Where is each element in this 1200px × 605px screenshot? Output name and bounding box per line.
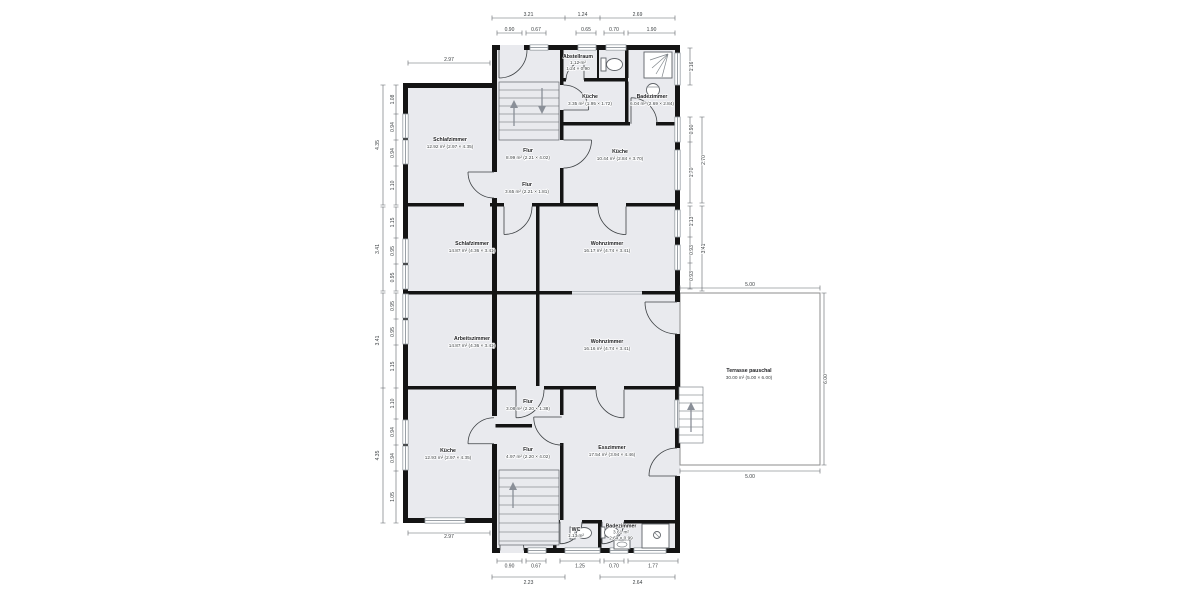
room-label-wohnzimmer-1: Wohnzimmer <box>591 241 623 247</box>
dim-text: 2.69 <box>633 12 643 18</box>
room-size-schlafzimmer-mid: 14.87 m² (4.36 × 3.41) <box>449 248 496 253</box>
window <box>578 45 596 50</box>
window <box>403 114 408 138</box>
dim-text: 3.21 <box>524 12 534 18</box>
room-size-esszimmer: 17.54 m² (3.94 × 4.46) <box>589 452 636 457</box>
room-size-kueche-small: 3.35 m² (1.95 × 1.72) <box>568 101 612 106</box>
room-size-flur-mid: 3.65 m² (2.21 × 1.81) <box>505 189 549 194</box>
stairs-bottom <box>499 470 559 545</box>
window <box>675 245 680 270</box>
window <box>675 150 680 190</box>
dim-text: 0.90 <box>505 564 515 570</box>
dim-text: 0.94 <box>390 122 396 132</box>
dim-text: 0.95 <box>390 301 396 311</box>
dim-text: 1.15 <box>390 217 396 227</box>
window <box>403 140 408 164</box>
dim-text: 1.77 <box>648 564 658 570</box>
room-size-wohnzimmer-1: 16.17 m² (4.74 × 3.41) <box>584 248 631 253</box>
shower-icon <box>642 524 669 548</box>
dim-text: 0.70 <box>609 27 619 33</box>
window <box>403 239 408 263</box>
room-dim-abstellraum: 1.24 × 0.90 <box>566 66 590 71</box>
dim-text: 1.05 <box>390 492 396 502</box>
room-label-flur-top: Flur <box>523 148 533 154</box>
floor-plan-canvas: Schlafzimmer 12.92 m² (2.97 × 4.35) Flur… <box>0 0 1200 600</box>
window <box>634 548 666 553</box>
room-size-schlafzimmer-top: 12.92 m² (2.97 × 4.35) <box>427 144 474 149</box>
dim-text: 0.95 <box>390 272 396 282</box>
room-size-wohnzimmer-2: 16.16 m² (4.74 × 3.41) <box>584 346 631 351</box>
room-size-flur-4: 4.97 m² (2.20 × 4.02) <box>506 454 550 459</box>
window <box>675 53 680 85</box>
dim-text: 1.16 <box>689 61 695 71</box>
room-dim-bad-bottom: 2.64 × 0.99 <box>609 536 633 541</box>
window <box>425 518 465 523</box>
window <box>606 45 626 50</box>
dim-text: 0.67 <box>531 564 541 570</box>
dim-text: 0.93 <box>689 271 695 281</box>
room-label-terrasse: Terrasse pauschal <box>726 368 772 374</box>
room-size-terrasse: 30.00 m² (5.00 × 6.00) <box>726 375 773 380</box>
room-size-arbeitszimmer: 14.87 m² (4.36 × 3.41) <box>449 343 496 348</box>
room-label-flur-mid: Flur <box>522 182 532 188</box>
dim-text: 5.00 <box>745 474 755 480</box>
dim-text: 6.00 <box>823 374 829 384</box>
room-label-schlafzimmer-mid: Schlafzimmer <box>455 241 489 247</box>
window <box>528 548 546 553</box>
dim-text: 1.70 <box>689 167 695 177</box>
room-size-flur-3: 3.08 m² (2.20 × 1.38) <box>506 406 550 411</box>
dim-text: 0.94 <box>390 427 396 437</box>
dim-text: 1.90 <box>647 27 657 33</box>
dim-text: 1.13 <box>689 216 695 226</box>
dim-text: 4.35 <box>375 140 381 150</box>
dim-text: 0.93 <box>689 245 695 255</box>
room-label-kueche-small: Küche <box>582 94 598 100</box>
dim-text: 2.70 <box>701 155 707 165</box>
floor-plan-page: Schlafzimmer 12.92 m² (2.97 × 4.35) Flur… <box>0 0 1200 600</box>
window <box>403 294 408 318</box>
dim-text: 0.90 <box>689 124 695 134</box>
window <box>565 548 600 553</box>
dim-text: 3.41 <box>375 244 381 254</box>
window <box>675 210 680 237</box>
dim-text: 3.41 <box>375 335 381 345</box>
room-size-flur-top: 8.99 m² (2.21 × 4.02) <box>506 155 550 160</box>
dim-text: 0.70 <box>609 564 619 570</box>
dim-text: 1.15 <box>390 361 396 371</box>
dim-text: 5.00 <box>745 282 755 288</box>
window <box>403 420 408 444</box>
room-label-schlafzimmer-top: Schlafzimmer <box>433 137 467 143</box>
window <box>675 117 680 142</box>
stairs-terrace <box>679 387 703 443</box>
stairs-top <box>499 82 559 140</box>
window <box>403 265 408 289</box>
room-label-flur-4: Flur <box>523 447 533 453</box>
dim-text: 1.08 <box>390 94 396 104</box>
sink-icon <box>614 540 630 549</box>
room-size-abstellraum: 1.12 m² <box>570 60 586 65</box>
room-size-wc: 1.13 m² <box>568 533 584 538</box>
room-size-kueche-top: 10.44 m² (2.84 × 3.70) <box>597 156 644 161</box>
shower-icon <box>644 52 672 78</box>
dim-text: 2.23 <box>524 580 534 586</box>
dim-text: 0.95 <box>390 327 396 337</box>
room-label-arbeitszimmer: Arbeitszimmer <box>454 336 490 342</box>
dim-text: 2.64 <box>633 580 643 586</box>
room-label-kueche-top: Küche <box>612 149 628 155</box>
dim-text: 4.35 <box>375 450 381 460</box>
room-size-kueche-bottom: 12.93 m² (2.97 × 4.35) <box>425 455 472 460</box>
dim-text: 2.97 <box>444 57 454 63</box>
dim-text: 1.10 <box>390 180 396 190</box>
room-label-wohnzimmer-2: Wohnzimmer <box>591 339 623 345</box>
dim-text: 0.94 <box>390 453 396 463</box>
dim-text: 2.97 <box>444 534 454 540</box>
room-size-bad-bottom: 3.61 m² <box>613 530 629 535</box>
toilet-icon <box>601 58 623 71</box>
window <box>403 320 408 344</box>
dim-text: 0.94 <box>390 148 396 158</box>
room-label-esszimmer: Esszimmer <box>598 445 625 451</box>
dim-text: 1.10 <box>390 398 396 408</box>
room-label-flur-3: Flur <box>523 399 533 405</box>
dim-text: 3.41 <box>701 243 707 253</box>
window <box>530 45 548 50</box>
dim-text: 0.67 <box>531 27 541 33</box>
dim-text: 0.90 <box>505 27 515 33</box>
dim-text: 1.25 <box>575 564 585 570</box>
window <box>403 446 408 470</box>
dim-text: 1.24 <box>578 12 588 18</box>
room-size-bad-top: 6.04 m² (2.69 × 2.84) <box>630 101 674 106</box>
dim-text: 0.65 <box>581 27 591 33</box>
room-label-kueche-bottom: Küche <box>440 448 456 454</box>
room-label-bad-top: Badezimmer <box>637 94 668 100</box>
dim-text: 0.95 <box>390 246 396 256</box>
